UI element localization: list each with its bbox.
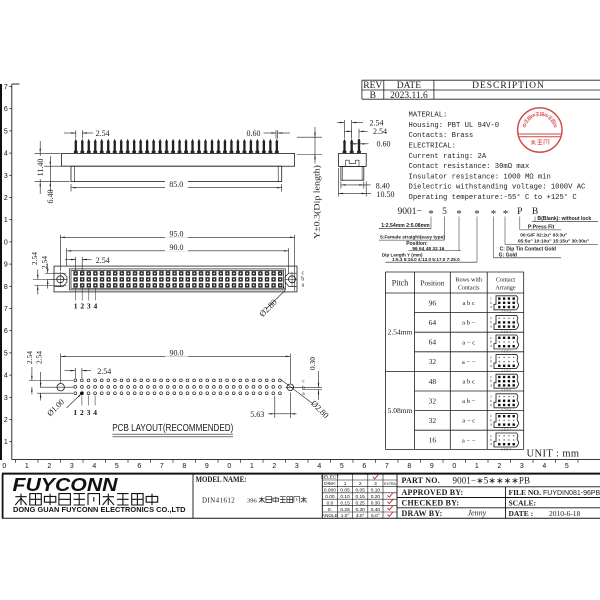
svg-text:5.0°: 5.0° — [371, 513, 380, 519]
svg-text:3: 3 — [87, 408, 91, 417]
svg-text:a: a — [301, 283, 304, 289]
svg-text:Insulator resistance: 1000 MΩ: Insulator resistance: 1000 MΩ min — [409, 173, 551, 181]
svg-text:0.60: 0.60 — [247, 129, 261, 138]
svg-text:1: 1 — [344, 481, 347, 487]
svg-text:1: 1 — [475, 463, 479, 470]
svg-text:a − c: a − c — [462, 339, 475, 346]
svg-text:3: 3 — [4, 395, 8, 402]
svg-text:Housing: PBT UL 94V-0: Housing: PBT UL 94V-0 — [409, 122, 500, 130]
svg-text:Arrange: Arrange — [495, 284, 516, 291]
svg-text:10.50: 10.50 — [377, 190, 395, 199]
svg-text:3: 3 — [4, 173, 8, 180]
svg-text:1:5.3 5:15.0 4:13.0 5:17.0: 1:5.3 5:15.0 4:13.0 5:17.0 7:25.0 — [392, 257, 460, 262]
svg-text:6: 6 — [137, 463, 141, 470]
svg-text:1: 1 — [4, 217, 8, 224]
svg-text:Contacts: Brass: Contacts: Brass — [409, 132, 474, 140]
svg-text:4: 4 — [542, 463, 546, 470]
svg-text:6: 6 — [362, 463, 366, 470]
svg-text:Rows with: Rows with — [455, 276, 483, 283]
svg-text:4: 4 — [317, 463, 321, 470]
svg-text:0.10: 0.10 — [371, 488, 381, 494]
svg-text:P: P — [517, 207, 522, 217]
svg-text:3: 3 — [374, 481, 377, 487]
svg-text:0.: 0. — [328, 507, 332, 513]
svg-text:1: 1 — [73, 408, 77, 417]
svg-text:Contact resistance: 30mΩ max: Contact resistance: 30mΩ max — [409, 163, 530, 171]
svg-text:2: 2 — [80, 408, 84, 417]
svg-text:a: a — [490, 383, 492, 387]
svg-text:a: a — [490, 403, 492, 407]
svg-text:2.54mm: 2.54mm — [388, 328, 413, 337]
svg-text:5: 5 — [442, 207, 447, 217]
svg-text:32: 32 — [429, 396, 437, 405]
svg-text:90.0: 90.0 — [170, 243, 184, 252]
svg-text:4: 4 — [92, 463, 96, 470]
svg-text:ELECTRICAL:: ELECTRICAL: — [409, 143, 456, 151]
svg-text:0.30: 0.30 — [371, 500, 381, 506]
svg-text:96 64 48 32 16: 96 64 48 32 16 — [412, 246, 444, 252]
svg-text:DRAW BY:: DRAW BY: — [402, 509, 443, 518]
svg-text:*: * — [503, 208, 509, 220]
svg-text:a − −: a − − — [462, 359, 476, 366]
svg-text:1 2 3 4: 1 2 3 4 — [501, 369, 511, 373]
svg-text:5: 5 — [4, 128, 8, 135]
svg-text:2.54: 2.54 — [40, 256, 49, 269]
svg-text:Contact: Contact — [496, 276, 516, 283]
svg-text:8: 8 — [4, 284, 8, 291]
svg-text:0.10: 0.10 — [340, 494, 350, 500]
svg-text:1 2 3 4: 1 2 3 4 — [501, 349, 511, 353]
svg-text:2: 2 — [272, 463, 276, 470]
svg-text:PCB LAYOUT(RECOMMENDED): PCB LAYOUT(RECOMMENDED) — [112, 423, 233, 434]
svg-text:EXTRA: EXTRA — [384, 482, 396, 486]
svg-text:9: 9 — [4, 262, 8, 269]
svg-text:1 2 3 4: 1 2 3 4 — [501, 330, 511, 334]
svg-text:0.30: 0.30 — [356, 507, 366, 513]
svg-text:32: 32 — [429, 357, 437, 366]
svg-text:0: 0 — [2, 463, 6, 470]
svg-text:a − c: a − c — [462, 418, 475, 425]
svg-text:4: 4 — [94, 302, 98, 311]
svg-text:2.54: 2.54 — [370, 119, 384, 128]
svg-text:11.40: 11.40 — [36, 159, 45, 177]
svg-text:64: 64 — [429, 338, 437, 347]
svg-text:32: 32 — [429, 416, 437, 425]
svg-text:5: 5 — [115, 463, 119, 470]
svg-text:6.40: 6.40 — [46, 190, 55, 204]
svg-text:1: 1 — [25, 463, 29, 470]
svg-text:05:5u" 10:10u" 15:15u" 30:30: 05:5u" 10:10u" 15:15u" 30:30u" — [518, 239, 589, 245]
svg-text:1.0°: 1.0° — [341, 513, 350, 519]
svg-text:0.40: 0.40 — [371, 507, 381, 513]
svg-text:8: 8 — [182, 463, 186, 470]
svg-text:0.60: 0.60 — [377, 140, 391, 149]
svg-text:1: 1 — [4, 439, 8, 446]
svg-text:3: 3 — [87, 302, 91, 311]
svg-text:a: a — [490, 364, 492, 368]
svg-text:1 2 3 4: 1 2 3 4 — [501, 447, 511, 451]
svg-text:0.00: 0.00 — [325, 494, 335, 500]
svg-text:0.05: 0.05 — [356, 488, 366, 494]
svg-text:2: 2 — [47, 463, 51, 470]
svg-text:Contacts: Contacts — [458, 284, 480, 291]
svg-text:Jenny: Jenny — [468, 508, 487, 517]
svg-text:1 2 3 4: 1 2 3 4 — [501, 428, 511, 432]
svg-text:CHECKED BY:: CHECKED BY: — [402, 499, 460, 508]
svg-text:b: b — [301, 276, 304, 282]
svg-text:DONG GUAN FUYCONN ELECTRONICS: DONG GUAN FUYCONN ELECTRONICS CO.,LTD — [13, 505, 186, 514]
svg-text:2: 2 — [4, 417, 8, 424]
svg-text:a − −: a − − — [462, 437, 476, 444]
svg-text:5: 5 — [4, 350, 8, 357]
svg-text:1 2 3 4: 1 2 3 4 — [501, 389, 511, 393]
svg-text:a b c: a b c — [462, 300, 475, 307]
svg-text:SCALE:: SCALE: — [509, 499, 537, 508]
svg-text:DATE: DATE — [397, 81, 421, 91]
svg-text:5: 5 — [340, 463, 344, 470]
svg-text:3: 3 — [295, 463, 299, 470]
svg-text:2: 2 — [359, 481, 362, 487]
svg-text:G: Gold: G: Gold — [499, 252, 517, 258]
svg-text:DESCRIPTION: DESCRIPTION — [472, 81, 545, 91]
svg-text:2010-6-18: 2010-6-18 — [549, 509, 580, 518]
svg-text:ANGLE: ANGLE — [322, 513, 338, 519]
svg-text:5:Female straight(easy type): 5:Female straight(easy type) — [380, 235, 445, 241]
svg-text:0.000: 0.000 — [324, 488, 336, 494]
svg-text:7: 7 — [160, 463, 164, 470]
svg-text:Current rating: 2A: Current rating: 2A — [409, 153, 487, 161]
svg-text:a b −: a b − — [462, 398, 476, 405]
svg-text:3.0°: 3.0° — [356, 513, 365, 519]
svg-text:1 2 3 4: 1 2 3 4 — [501, 408, 511, 412]
svg-text:8: 8 — [407, 463, 411, 470]
svg-text:Y±0.3(Dip length): Y±0.3(Dip length) — [311, 165, 321, 239]
svg-text:Pitch: Pitch — [392, 278, 408, 287]
svg-text:0.25: 0.25 — [340, 507, 350, 513]
svg-text:3: 3 — [70, 463, 74, 470]
svg-text:0.0: 0.0 — [327, 500, 334, 506]
svg-text:7: 7 — [4, 84, 8, 91]
svg-text:2.54: 2.54 — [30, 252, 39, 265]
svg-text:UNIT : mm: UNIT : mm — [527, 449, 580, 460]
svg-text:1: 1 — [250, 463, 254, 470]
svg-text:2.54: 2.54 — [97, 367, 111, 376]
svg-text:7: 7 — [4, 306, 8, 313]
svg-text:6: 6 — [4, 328, 8, 335]
svg-text:FUYDIN081-96PB: FUYDIN081-96PB — [543, 490, 600, 497]
svg-text:9: 9 — [430, 463, 434, 470]
svg-text:2: 2 — [4, 195, 8, 202]
svg-text:0.20: 0.20 — [371, 494, 381, 500]
svg-text:1: 1 — [74, 302, 78, 311]
svg-text:90.0: 90.0 — [170, 349, 184, 358]
svg-text:4: 4 — [4, 373, 8, 380]
svg-text:9001−: 9001− — [398, 207, 422, 217]
svg-text:APPROVED BY:: APPROVED BY: — [402, 488, 464, 497]
svg-text:9001−∗5∗∗∗∗PB: 9001−∗5∗∗∗∗PB — [453, 476, 531, 486]
svg-text:48: 48 — [429, 377, 437, 386]
svg-text:PART NO.: PART NO. — [402, 476, 440, 485]
svg-text:3: 3 — [520, 463, 524, 470]
svg-text:0.30: 0.30 — [308, 357, 317, 370]
svg-text:396: 396 — [247, 498, 258, 505]
svg-text:MODEL NAME:: MODEL NAME: — [196, 475, 247, 484]
svg-text:REV: REV — [363, 81, 382, 91]
svg-text:4: 4 — [4, 151, 8, 158]
svg-text:Dielectric withstanding voltag: Dielectric withstanding voltage: 1000V A… — [409, 184, 587, 192]
svg-text:0.15: 0.15 — [356, 494, 366, 500]
svg-text:a: a — [490, 325, 492, 329]
svg-text:0.15: 0.15 — [340, 500, 350, 506]
svg-text:85.0: 85.0 — [169, 180, 183, 189]
svg-text:0.25: 0.25 — [356, 500, 366, 506]
svg-text:0.05: 0.05 — [340, 488, 350, 494]
svg-text:FUYCONN: FUYCONN — [13, 474, 119, 495]
svg-text:a: a — [490, 344, 492, 348]
svg-text:5.63: 5.63 — [250, 410, 264, 419]
svg-text:a b c: a b c — [462, 379, 475, 386]
svg-text:1:2.54mm 2:5.08mm: 1:2.54mm 2:5.08mm — [381, 223, 430, 229]
svg-text:96: 96 — [429, 298, 437, 307]
svg-text:b: b — [302, 385, 305, 391]
svg-text:a: a — [490, 305, 492, 309]
svg-text:DATE :: DATE : — [509, 509, 534, 518]
svg-text:0: 0 — [4, 239, 8, 246]
svg-text:4: 4 — [93, 408, 97, 417]
svg-text:a: a — [490, 442, 492, 446]
svg-text:2.54: 2.54 — [35, 351, 44, 364]
svg-text:B: B — [370, 91, 376, 101]
svg-text:5.08mm: 5.08mm — [388, 406, 413, 415]
svg-text:DIN41612: DIN41612 — [202, 497, 235, 505]
svg-text:SELECT: SELECT — [321, 475, 340, 481]
svg-text:5: 5 — [565, 463, 569, 470]
svg-text:2023.11.6: 2023.11.6 — [390, 91, 428, 101]
svg-text:Position: Position — [420, 278, 444, 287]
svg-text:FILE NO.: FILE NO. — [509, 488, 542, 497]
svg-text:64: 64 — [429, 318, 437, 327]
svg-text:B(Blank): without lock: B(Blank): without lock — [537, 216, 591, 222]
svg-text:Operating temperature:-55° C t: Operating temperature:-55° C to +125° C — [409, 193, 578, 202]
svg-text:95.0: 95.0 — [170, 230, 184, 239]
svg-text:a: a — [490, 423, 492, 427]
svg-text:DIM<: DIM< — [324, 481, 336, 487]
svg-text:2.54: 2.54 — [96, 256, 110, 265]
svg-text:2.54: 2.54 — [96, 129, 110, 138]
svg-text:6: 6 — [4, 106, 8, 113]
svg-text:16: 16 — [429, 436, 437, 445]
svg-text:9: 9 — [205, 463, 209, 470]
svg-text:7: 7 — [385, 463, 389, 470]
svg-text:2.54: 2.54 — [25, 351, 34, 364]
svg-text:2.54: 2.54 — [373, 127, 387, 136]
svg-text:2: 2 — [497, 463, 501, 470]
svg-text:0: 0 — [227, 463, 231, 470]
svg-text:1 2 3 4: 1 2 3 4 — [501, 310, 511, 314]
svg-text:0: 0 — [452, 463, 456, 470]
svg-text:a b −: a b − — [462, 320, 476, 327]
svg-text:MATERLAL:: MATERLAL: — [409, 112, 448, 120]
svg-text:2: 2 — [80, 302, 84, 311]
svg-text:00:G/F 02:2u" 03:3u": 00:G/F 02:2u" 03:3u" — [520, 233, 567, 239]
